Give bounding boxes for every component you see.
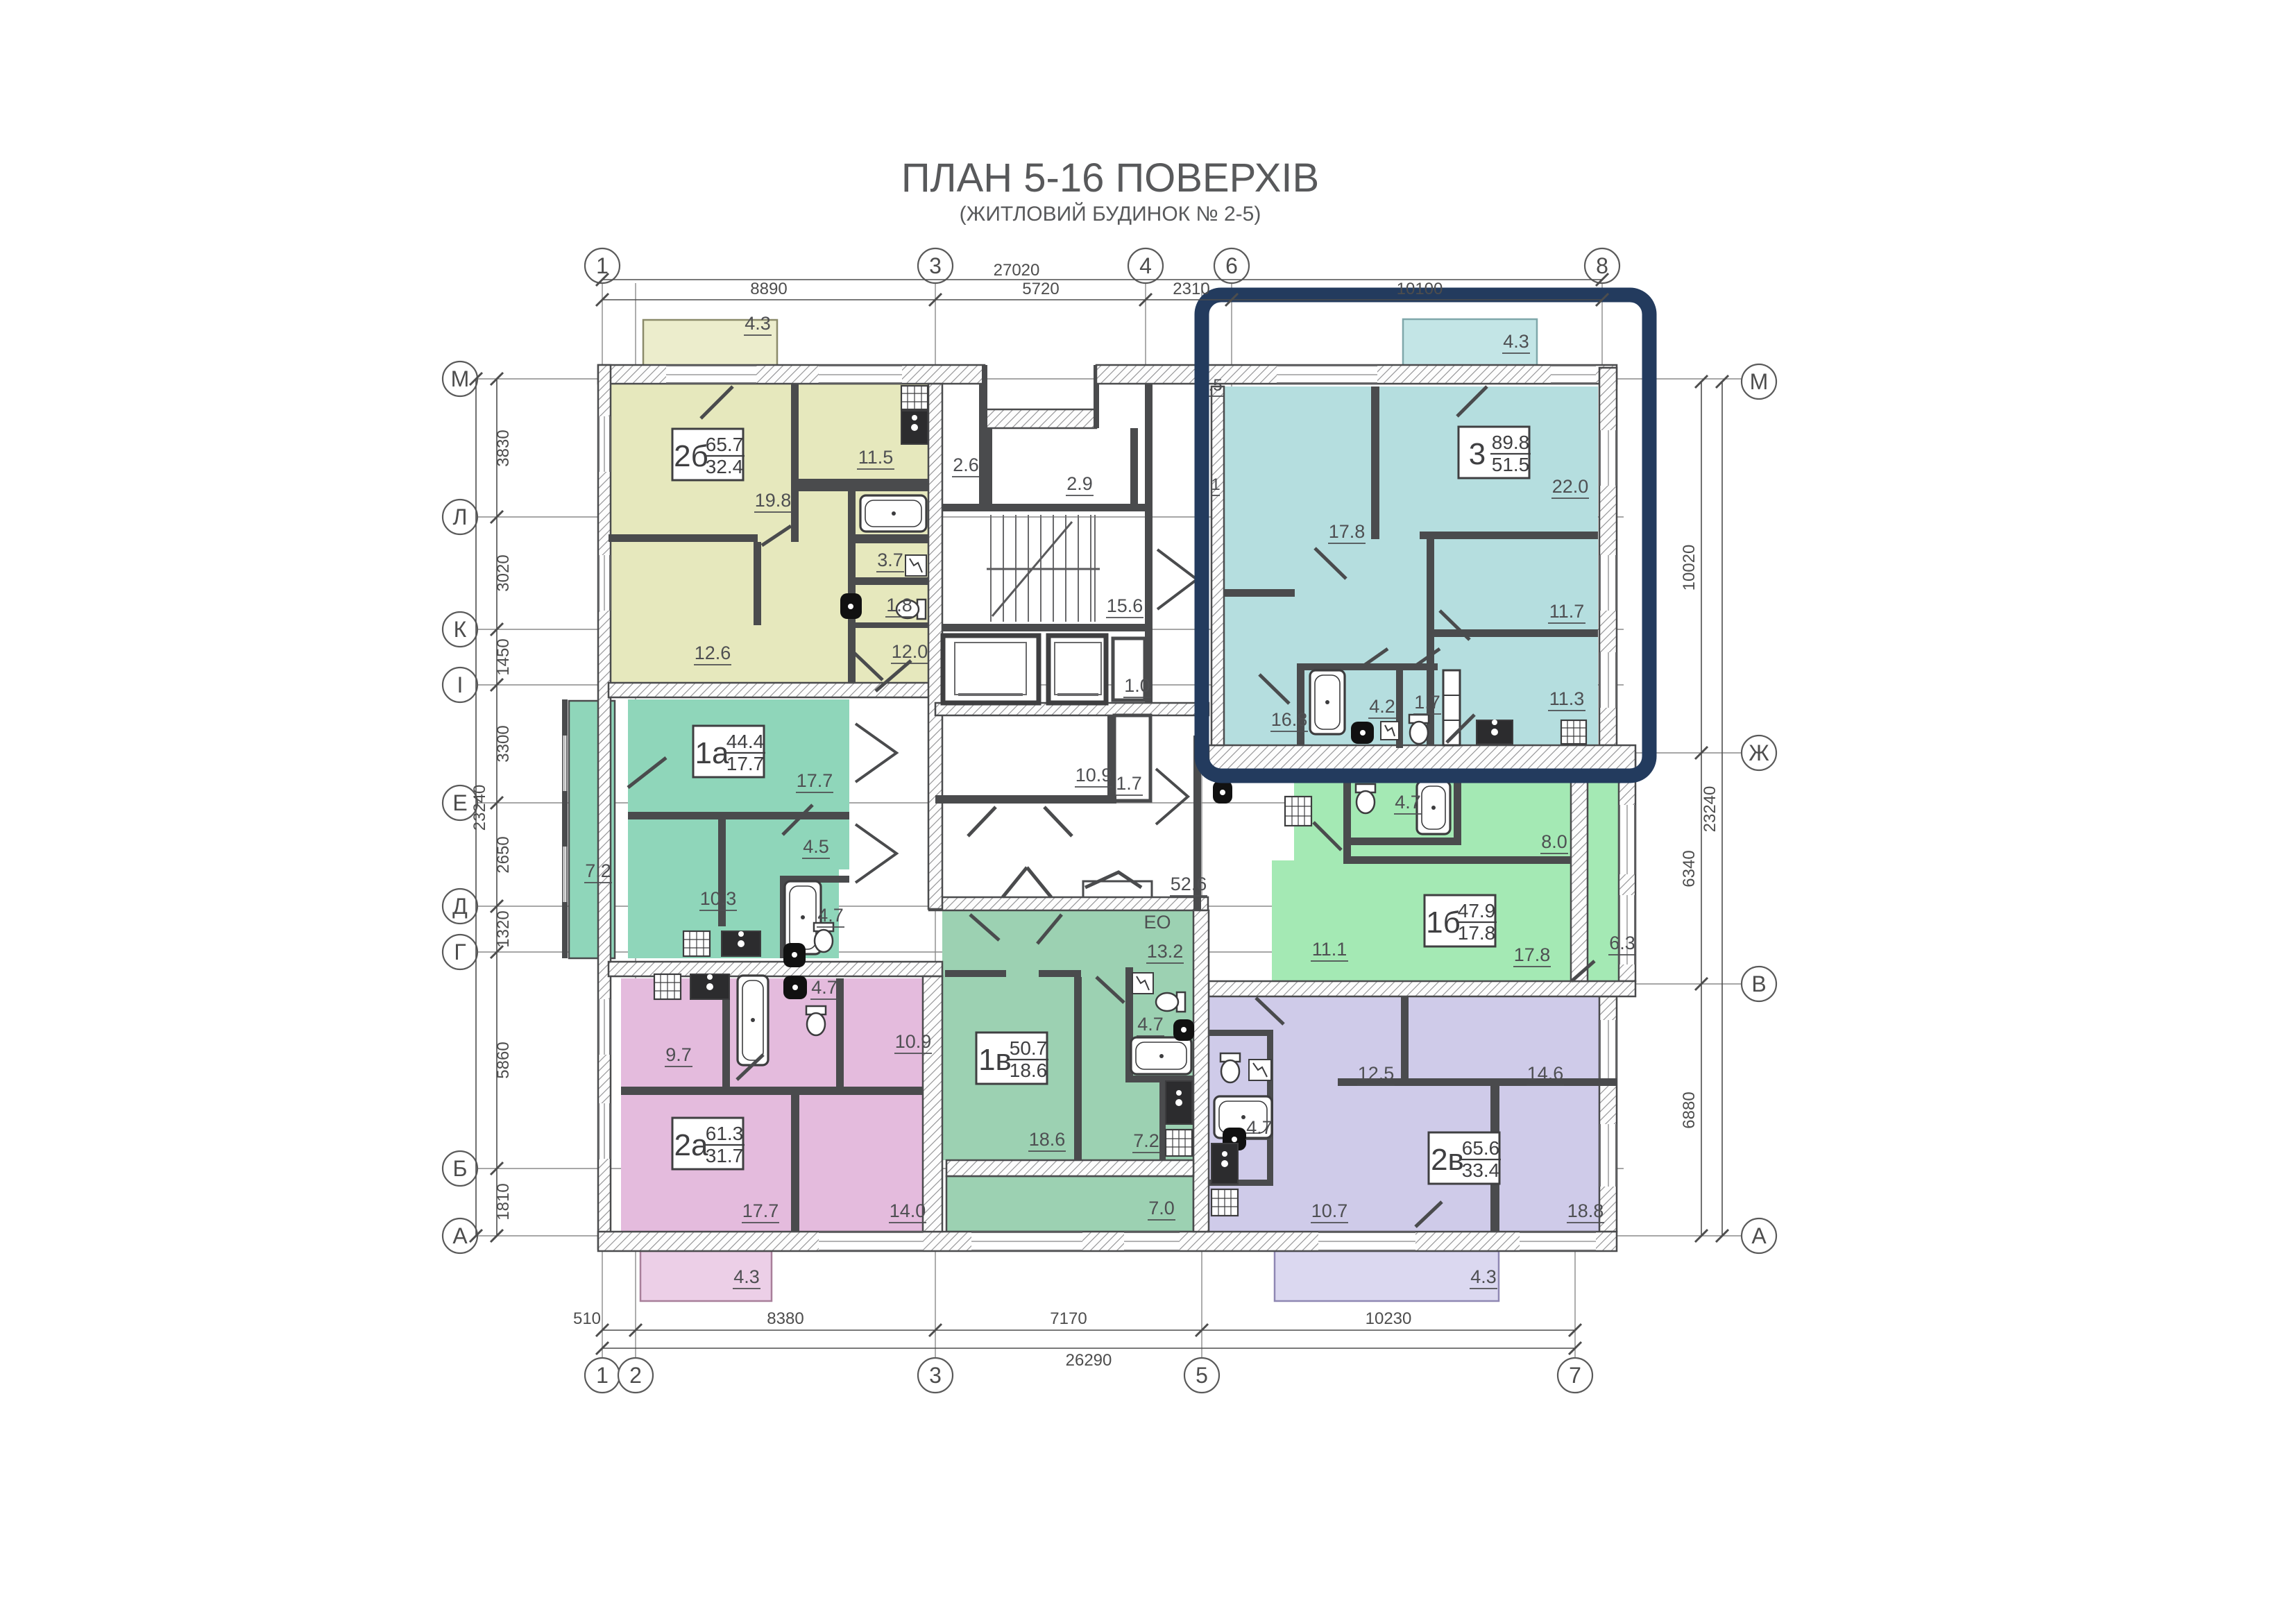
- svg-text:А: А: [1751, 1223, 1767, 1248]
- svg-text:Ж: Ж: [1749, 740, 1769, 765]
- svg-text:1320: 1320: [494, 910, 513, 947]
- svg-text:11.5: 11.5: [858, 447, 894, 468]
- svg-text:3300: 3300: [494, 725, 513, 762]
- svg-text:17.8: 17.8: [1514, 944, 1551, 965]
- svg-text:13.2: 13.2: [1147, 941, 1184, 962]
- svg-text:2а: 2а: [674, 1128, 708, 1162]
- svg-text:14.6: 14.6: [1527, 1063, 1564, 1084]
- svg-text:4.7: 4.7: [1395, 792, 1421, 813]
- svg-text:В: В: [1751, 971, 1766, 996]
- svg-text:65.7: 65.7: [706, 434, 744, 455]
- svg-text:2: 2: [629, 1363, 642, 1388]
- svg-text:2в: 2в: [1431, 1143, 1464, 1177]
- svg-text:33.4: 33.4: [1462, 1159, 1500, 1181]
- svg-text:Г: Г: [454, 940, 466, 965]
- svg-text:50.7: 50.7: [1010, 1037, 1048, 1059]
- svg-text:3020: 3020: [494, 554, 513, 591]
- svg-text:ЕО: ЕО: [1143, 912, 1171, 933]
- svg-text:3: 3: [1469, 437, 1486, 471]
- svg-text:16.8: 16.8: [1271, 709, 1308, 730]
- svg-text:8.0: 8.0: [1541, 831, 1567, 852]
- svg-text:4.2: 4.2: [1369, 696, 1395, 717]
- svg-text:17.7: 17.7: [726, 753, 765, 774]
- svg-text:Б: Б: [453, 1156, 468, 1181]
- svg-text:47.9: 47.9: [1458, 900, 1496, 921]
- svg-text:8380: 8380: [767, 1309, 803, 1328]
- svg-text:17.8: 17.8: [1458, 922, 1496, 944]
- svg-text:6880: 6880: [1680, 1091, 1699, 1128]
- svg-text:5860: 5860: [494, 1042, 513, 1078]
- svg-text:17.7: 17.7: [797, 770, 833, 791]
- svg-text:К: К: [454, 617, 467, 642]
- svg-text:31.7: 31.7: [706, 1145, 744, 1166]
- svg-text:І: І: [457, 672, 464, 697]
- svg-text:22.0: 22.0: [1552, 476, 1589, 497]
- svg-text:10100: 10100: [1397, 280, 1443, 298]
- svg-text:1: 1: [596, 1363, 609, 1388]
- svg-text:А: А: [452, 1223, 468, 1248]
- svg-text:10.7: 10.7: [1311, 1200, 1348, 1221]
- svg-text:10.9: 10.9: [895, 1031, 932, 1052]
- svg-text:61.3: 61.3: [706, 1123, 744, 1144]
- svg-text:Е: Е: [452, 790, 467, 815]
- svg-text:3: 3: [929, 1363, 942, 1388]
- svg-text:2.9: 2.9: [1066, 473, 1093, 494]
- svg-text:1.7: 1.7: [1414, 692, 1440, 713]
- svg-text:23240: 23240: [1701, 786, 1719, 833]
- svg-text:7.2: 7.2: [1133, 1130, 1159, 1151]
- svg-text:1а: 1а: [695, 736, 729, 770]
- svg-text:2.6: 2.6: [953, 454, 979, 475]
- svg-text:27020: 27020: [994, 261, 1040, 280]
- svg-text:8890: 8890: [750, 280, 787, 298]
- svg-text:26290: 26290: [1066, 1351, 1112, 1370]
- svg-text:52.6: 52.6: [1171, 874, 1207, 894]
- svg-text:1.7: 1.7: [1116, 773, 1142, 794]
- svg-text:4.7: 4.7: [1246, 1117, 1273, 1138]
- svg-text:15.6: 15.6: [1107, 595, 1143, 616]
- svg-text:11.3: 11.3: [1549, 688, 1585, 709]
- svg-text:10020: 10020: [1680, 545, 1699, 591]
- svg-text:3.7: 3.7: [877, 550, 903, 570]
- svg-text:18.6: 18.6: [1010, 1060, 1048, 1081]
- svg-text:М: М: [1750, 369, 1769, 394]
- svg-text:2б: 2б: [674, 439, 708, 473]
- svg-text:32.4: 32.4: [706, 456, 744, 477]
- svg-text:4.7: 4.7: [817, 905, 844, 926]
- svg-text:Д: Д: [452, 894, 468, 919]
- svg-text:4.3: 4.3: [1470, 1266, 1497, 1287]
- svg-text:17.7: 17.7: [742, 1200, 779, 1221]
- svg-text:4.7: 4.7: [811, 977, 837, 998]
- svg-text:12.0: 12.0: [892, 641, 928, 662]
- svg-text:14.0: 14.0: [890, 1200, 926, 1221]
- svg-text:6: 6: [1225, 253, 1238, 278]
- svg-text:3: 3: [929, 253, 942, 278]
- svg-text:12.6: 12.6: [695, 643, 731, 663]
- svg-text:19.8: 19.8: [755, 490, 792, 511]
- svg-text:11.1: 11.1: [1312, 939, 1347, 960]
- svg-text:2650: 2650: [494, 836, 513, 873]
- svg-text:12.5: 12.5: [1358, 1063, 1395, 1084]
- svg-text:44.4: 44.4: [726, 731, 765, 752]
- svg-text:5720: 5720: [1022, 280, 1059, 298]
- svg-text:4.7: 4.7: [1137, 1014, 1164, 1035]
- svg-text:9.7: 9.7: [665, 1044, 692, 1065]
- svg-text:23240: 23240: [470, 785, 489, 831]
- svg-text:М: М: [451, 366, 470, 391]
- svg-text:10.9: 10.9: [1075, 765, 1112, 785]
- svg-text:1б: 1б: [1426, 906, 1461, 940]
- svg-text:3830: 3830: [494, 430, 513, 466]
- svg-text:1.0: 1.0: [1124, 675, 1150, 696]
- svg-text:1в: 1в: [978, 1043, 1012, 1077]
- svg-text:89.8: 89.8: [1492, 432, 1530, 453]
- svg-text:11.7: 11.7: [1549, 601, 1585, 622]
- svg-text:18.8: 18.8: [1567, 1200, 1604, 1221]
- svg-text:65.6: 65.6: [1462, 1137, 1500, 1159]
- svg-text:1450: 1450: [494, 638, 513, 675]
- svg-text:1: 1: [1211, 475, 1220, 494]
- svg-text:7: 7: [1569, 1363, 1581, 1388]
- svg-text:4.5: 4.5: [803, 836, 829, 857]
- svg-text:6340: 6340: [1680, 850, 1699, 887]
- svg-text:4.3: 4.3: [745, 313, 771, 334]
- svg-text:(ЖИТЛОВИЙ БУДИНОК № 2-5): (ЖИТЛОВИЙ БУДИНОК № 2-5): [960, 202, 1261, 226]
- svg-text:10230: 10230: [1366, 1309, 1412, 1328]
- svg-text:51.5: 51.5: [1492, 454, 1530, 475]
- svg-text:10.3: 10.3: [700, 888, 737, 909]
- svg-text:ПЛАН 5-16 ПОВЕРХІВ: ПЛАН 5-16 ПОВЕРХІВ: [901, 155, 1319, 201]
- svg-text:1.8: 1.8: [886, 595, 912, 615]
- svg-text:7.2: 7.2: [585, 860, 611, 881]
- svg-text:2310: 2310: [1173, 280, 1209, 298]
- svg-text:4: 4: [1139, 253, 1152, 278]
- svg-text:5: 5: [1196, 1363, 1208, 1388]
- svg-text:4.3: 4.3: [1503, 331, 1529, 352]
- svg-text:6.3: 6.3: [1609, 933, 1635, 953]
- svg-text:Л: Л: [453, 504, 468, 529]
- svg-text:1810: 1810: [494, 1183, 513, 1220]
- svg-text:7.0: 7.0: [1148, 1198, 1175, 1218]
- svg-text:7170: 7170: [1050, 1309, 1087, 1328]
- svg-text:4.3: 4.3: [733, 1266, 760, 1287]
- svg-text:510: 510: [573, 1309, 601, 1328]
- svg-text:17.8: 17.8: [1329, 521, 1366, 542]
- svg-text:18.6: 18.6: [1029, 1129, 1066, 1150]
